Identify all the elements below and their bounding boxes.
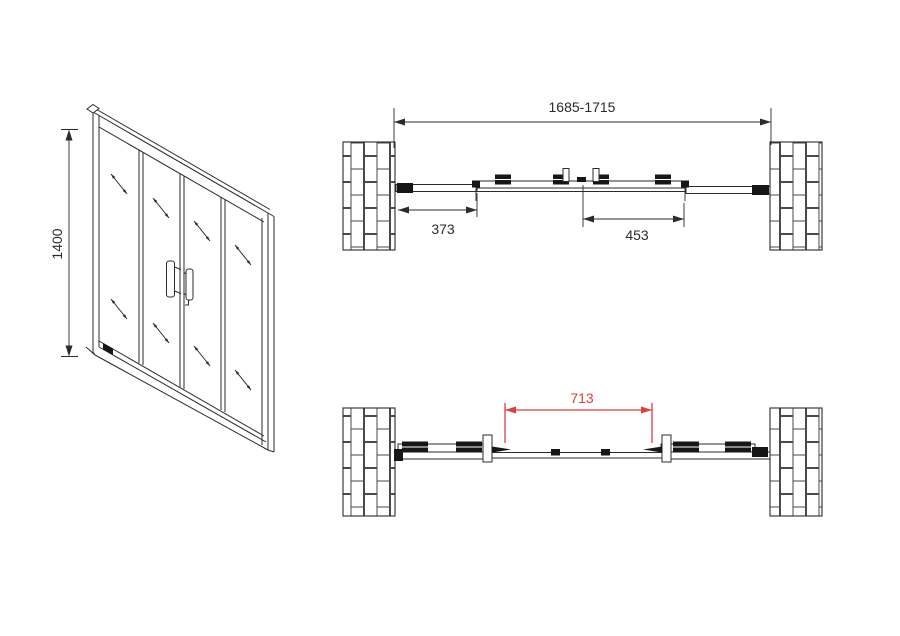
center-guide-block (577, 177, 586, 182)
track-guide-right (601, 449, 610, 456)
total-width-dimension-label: 1685-1715 (549, 99, 616, 115)
drawing-sheet: 1400 1685-1715 (0, 0, 900, 636)
handle-tab-right-open (662, 435, 671, 462)
wall-right-open (770, 408, 822, 516)
right-span-dimension: 453 (583, 185, 684, 243)
height-dimension-label: 1400 (49, 228, 65, 259)
corner-bracket-left (472, 181, 480, 188)
opening-dimension: 713 (505, 390, 652, 443)
panel-mullions (139, 150, 225, 412)
handle-tab-left-closed (563, 169, 569, 182)
plan-view-open: 713 (343, 390, 822, 516)
plan-view-closed: 1685-1715 373 (343, 99, 822, 250)
left-panel-dimension-label: 373 (431, 221, 455, 237)
corner-bracket-right (681, 181, 689, 188)
front-isometric-view: 1400 (49, 105, 274, 453)
wall-bracket-left (397, 183, 413, 193)
handle-tab-right-closed (593, 169, 599, 182)
wall-bracket-right (752, 185, 769, 195)
right-span-dimension-label: 453 (625, 227, 649, 243)
frame-top-left-cap (87, 105, 99, 114)
handle-flag-left (492, 447, 511, 453)
stacked-panels-right (643, 435, 770, 462)
handle-tab-left-open (483, 435, 492, 462)
technical-drawing-canvas: 1400 1685-1715 (0, 0, 900, 636)
right-door-handle (186, 269, 193, 300)
opening-dimension-label: 713 (570, 390, 594, 406)
bottom-guide-block (103, 343, 113, 355)
glass-reflection-marks (111, 174, 251, 390)
height-dimension: 1400 (49, 130, 78, 357)
left-panel-dimension: 373 (398, 193, 477, 237)
wall-left-closed (343, 142, 395, 250)
handle-flag-right (643, 447, 662, 453)
wall-right-closed (770, 142, 822, 250)
left-door-handle (167, 261, 175, 297)
total-width-dimension: 1685-1715 (394, 99, 771, 148)
track-guide-left (551, 449, 560, 456)
wall-left-open (343, 408, 395, 516)
